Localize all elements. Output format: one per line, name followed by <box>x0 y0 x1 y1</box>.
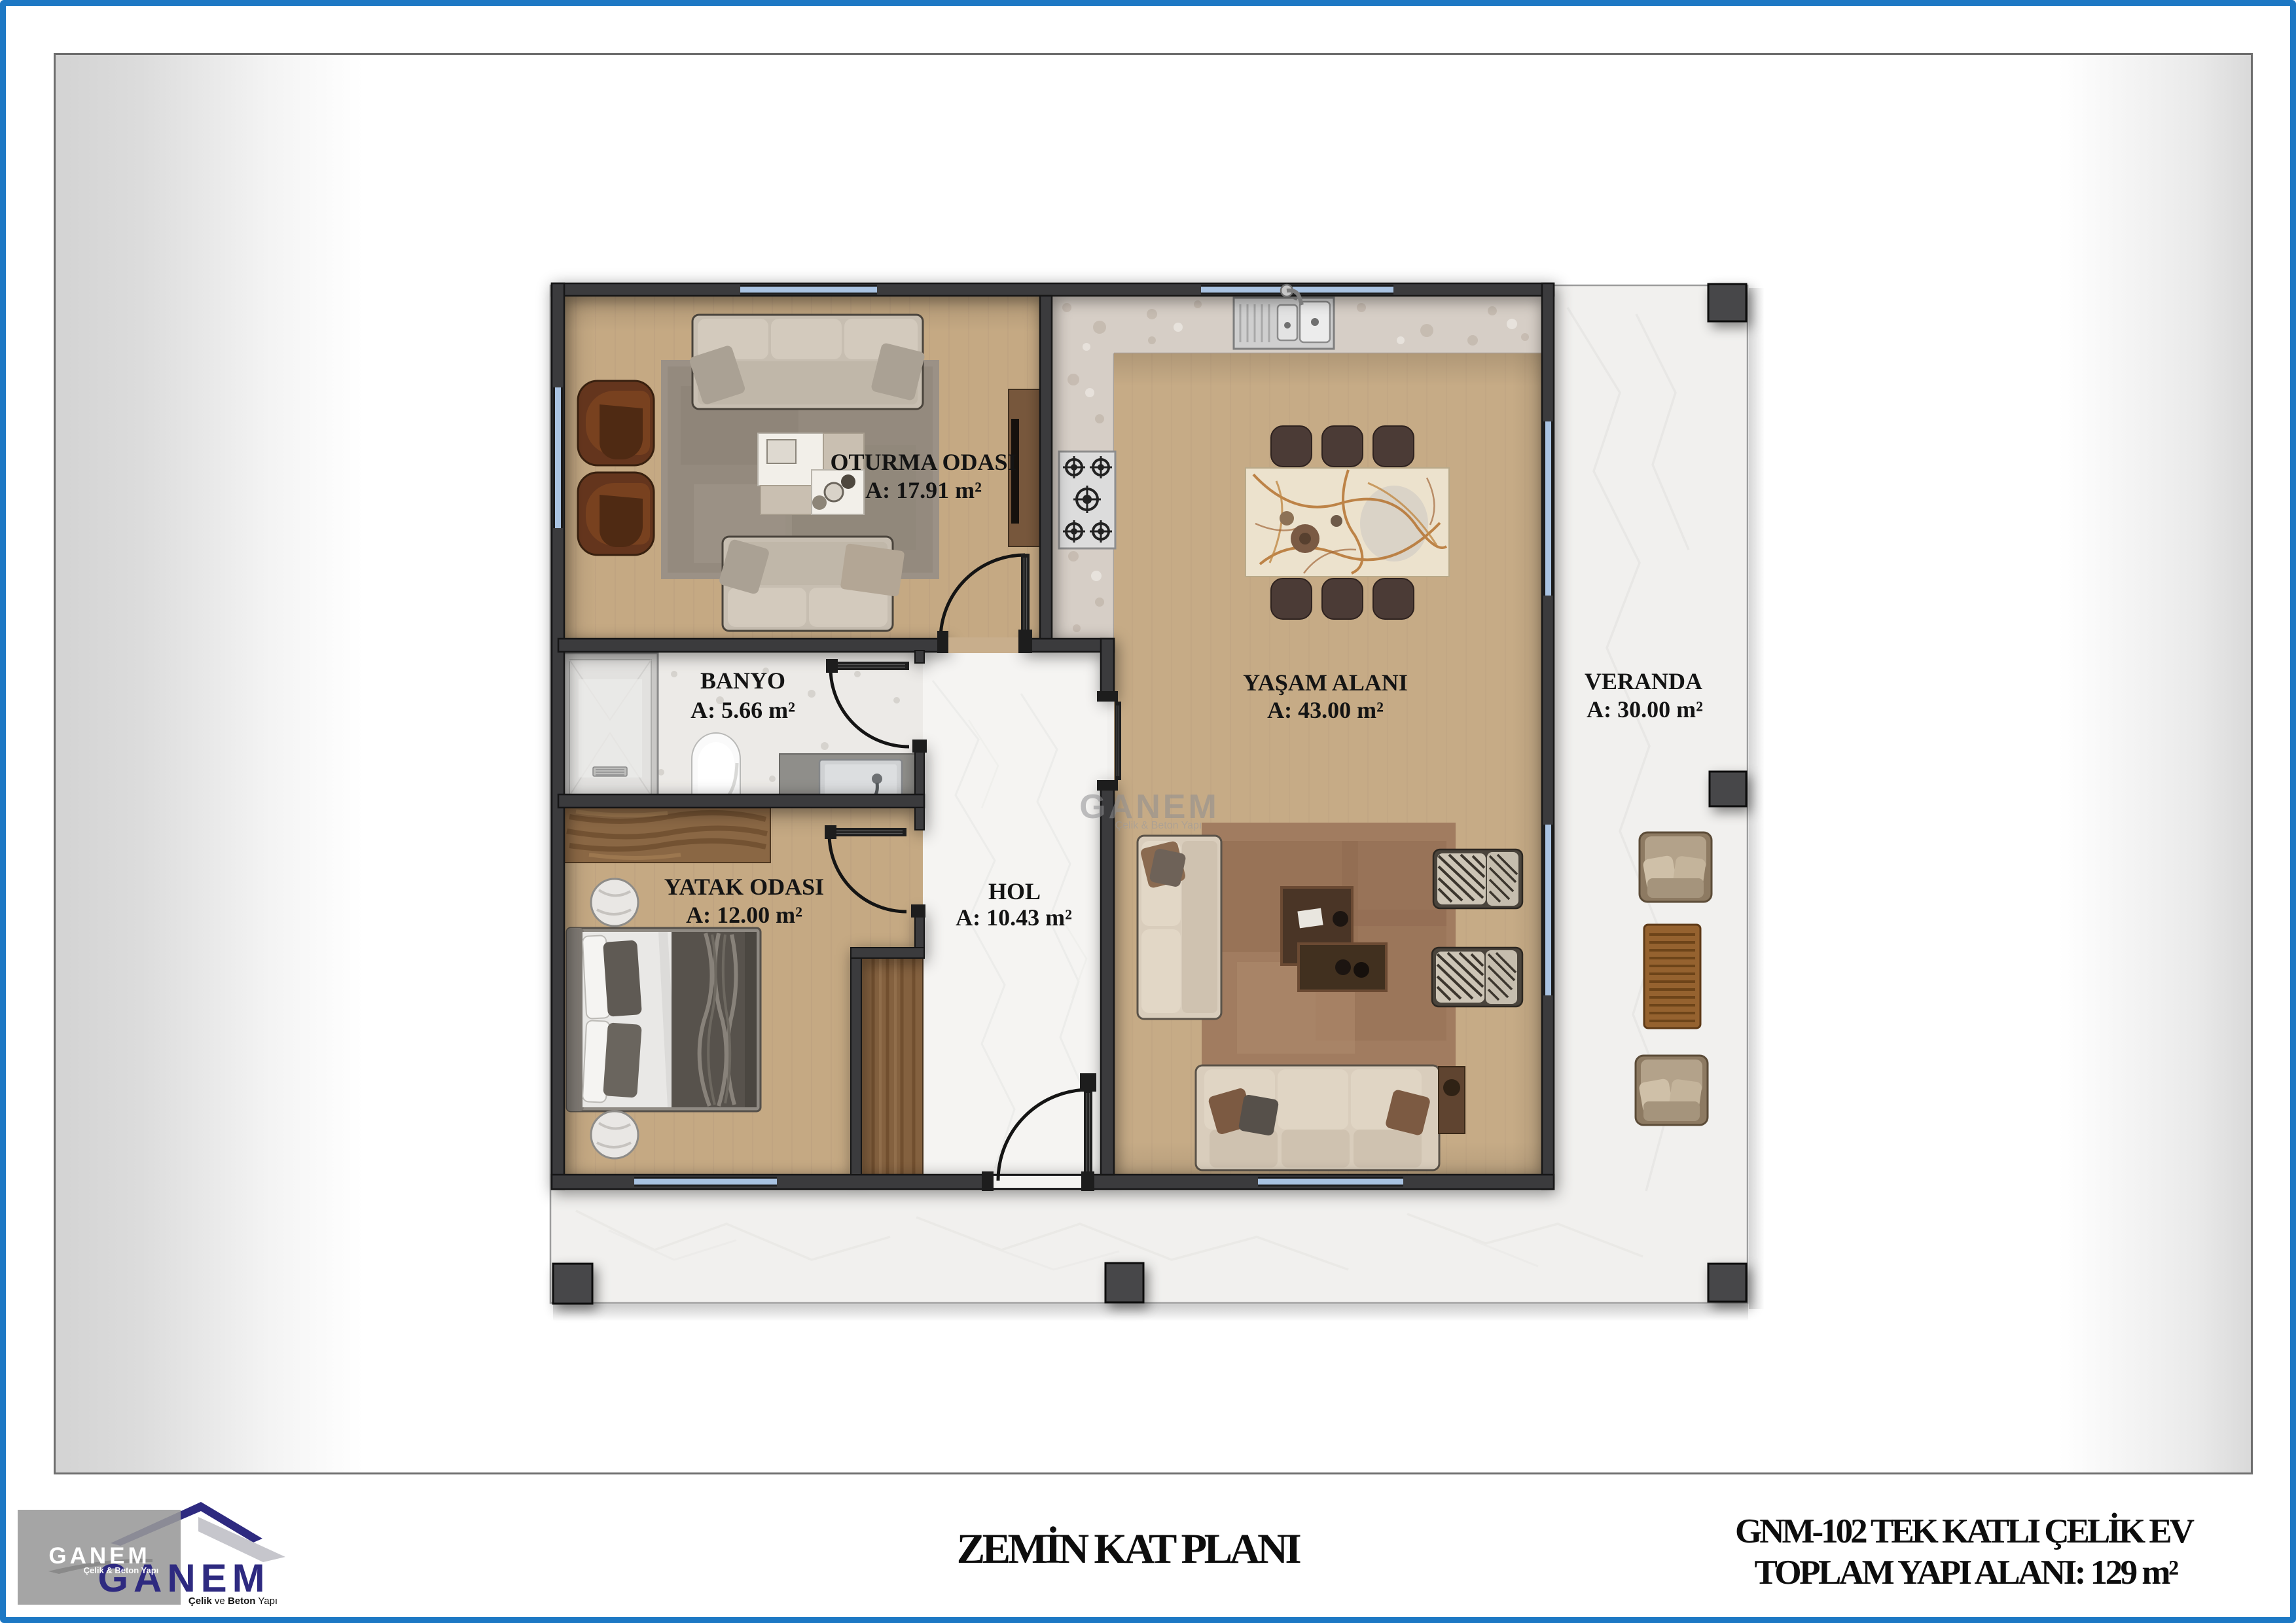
svg-text:A: 5.66 m²: A: 5.66 m² <box>691 697 795 723</box>
svg-text:HOL: HOL <box>988 878 1041 904</box>
svg-text:A: 30.00 m²: A: 30.00 m² <box>1587 696 1703 722</box>
svg-text:BANYO: BANYO <box>700 668 785 694</box>
svg-text:A: 17.91 m²: A: 17.91 m² <box>865 477 982 503</box>
svg-text:TOPLAM YAPI ALANI: 129 m²: TOPLAM YAPI ALANI: 129 m² <box>1755 1554 2179 1592</box>
svg-text:ZEMİN KAT PLANI: ZEMİN KAT PLANI <box>957 1525 1301 1573</box>
svg-text:A: 10.43 m²: A: 10.43 m² <box>956 904 1072 931</box>
svg-text:YATAK ODASI: YATAK ODASI <box>664 874 824 900</box>
svg-text:GNM-102 TEK KATLI ÇELİK EV: GNM-102 TEK KATLI ÇELİK EV <box>1735 1512 2195 1550</box>
svg-text:Çelik ve Beton Yapı: Çelik ve Beton Yapı <box>188 1596 278 1607</box>
svg-text:VERANDA: VERANDA <box>1585 668 1702 694</box>
svg-text:Çelik & Beton Yapı: Çelik & Beton Yapı <box>84 1565 159 1575</box>
svg-text:Çelik & Beton Yapı: Çelik & Beton Yapı <box>1115 820 1202 831</box>
svg-text:A: 43.00 m²: A: 43.00 m² <box>1267 697 1384 723</box>
svg-text:OTURMA ODASI: OTURMA ODASI <box>830 449 1016 475</box>
svg-text:A: 12.00 m²: A: 12.00 m² <box>686 902 802 928</box>
svg-text:YAŞAM ALANI: YAŞAM ALANI <box>1243 669 1408 696</box>
